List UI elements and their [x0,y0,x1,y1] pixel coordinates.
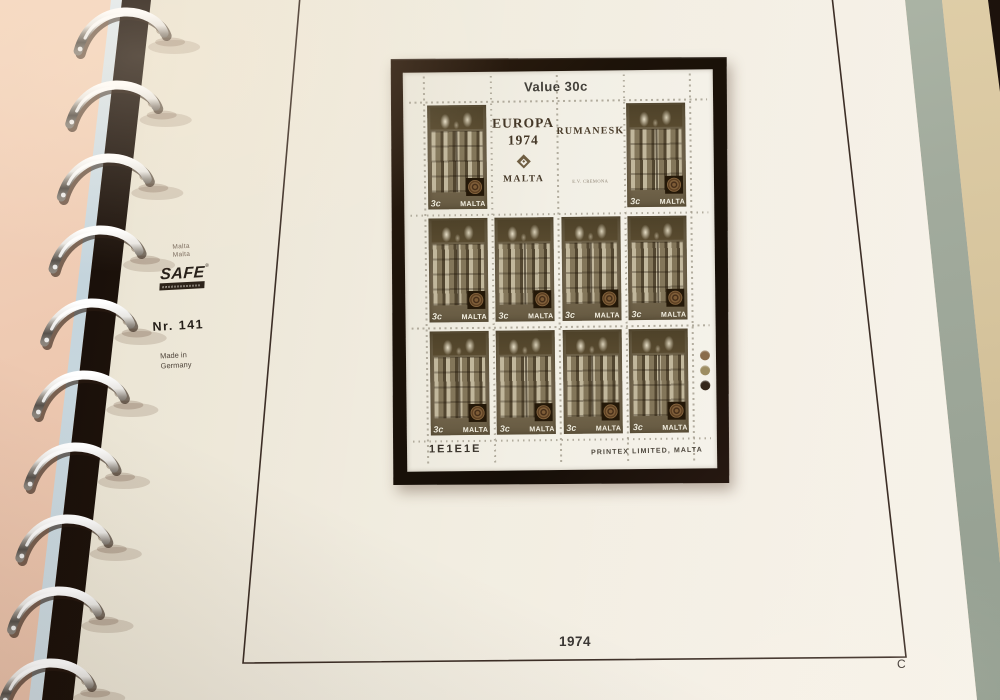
safe-logo-bar [159,281,204,290]
traffic-light-dot [700,350,710,360]
page-margin-printing: Malta Malta SAFE® Nr. 141 Made in German… [144,238,232,392]
stamp-rosette-icon [468,404,486,422]
stamp-sculpture-figures [431,220,484,243]
stamp-sculpture-figures [564,218,617,241]
stamp-country: MALTA [463,427,489,434]
page-number: Nr. 141 [152,317,204,334]
stamp-sculpture-figures [630,218,683,241]
stamp-sculpture-figures [432,333,485,356]
stamp-country: MALTA [595,312,621,319]
sheet-cell: 3cMALTA [426,327,494,441]
stamp-rosette-icon [666,289,684,307]
stamp-country: MALTA [596,425,622,432]
stamp-value: 3c [633,422,643,432]
stamp-value: 3c [432,311,442,321]
stamp-rosette-icon [667,402,685,420]
sheet-cell: 3cMALTA [492,326,560,440]
stamp-value: 3c [498,311,508,321]
stamp-country: MALTA [661,312,687,319]
stamp: 3cMALTA [561,216,621,321]
stamp: 3cMALTA [429,331,489,436]
stamp-value: 3c [630,196,640,206]
stamp-rosette-icon [467,291,485,309]
stamp-country: MALTA [529,426,555,433]
year-label: 1974 [540,634,610,649]
europa-text: EUROPA [490,115,557,132]
stamp-rosette-icon [465,178,483,196]
sheet-cell: 3cMALTA [491,213,559,327]
sheet-cell: 3cMALTA [623,99,691,213]
stamp-value: 3c [565,310,575,320]
sheet-cell: RUMANESKE.V. CREMONA [556,99,624,213]
stamp-rosette-icon [665,176,683,194]
miniature-sheet: Value 30c 3cMALTAEUROPA1974MALTARUMANESK… [403,69,718,471]
stamp-rosette-icon [535,403,553,421]
sheet-cell: 3cMALTA [424,214,492,328]
sheet-cell: 3cMALTA [423,101,491,215]
stamp-country: MALTA [462,314,488,321]
stamp: 3cMALTA [562,329,622,434]
sheet-cell: 3cMALTA [624,212,692,326]
stamp-country: MALTA [660,199,686,206]
stamp: 3cMALTA [494,217,554,322]
stamp-value: 3c [566,423,576,433]
stamp: 3cMALTA [496,330,556,435]
stamp-country: MALTA [528,313,554,320]
traffic-light-dots [700,350,711,395]
sheet-cell: 3cMALTA [625,325,693,439]
stamp-value: 3c [500,424,510,434]
country-label: Malta Malta [172,243,190,260]
sheet-cell: 3cMALTA [557,212,625,326]
printer-emblem-icon [516,154,530,168]
stamp: 3cMALTA [428,218,488,323]
sheet-cell: 3cMALTA [559,325,627,439]
stamp: 3cMALTA [427,105,487,210]
europa-country: MALTA [490,174,557,185]
romanesk-label: RUMANESKE.V. CREMONA [556,99,624,213]
photo-of-stamp-album: Malta Malta SAFE® Nr. 141 Made in German… [0,0,1000,700]
corner-letter: C [897,657,906,671]
perforation-lines [403,69,713,73]
stamp-rosette-icon [601,402,619,420]
made-in-label: Made in Germany [160,350,192,371]
stamp: 3cMALTA [626,103,686,208]
traffic-light-dot [700,380,710,390]
sheet-cell: EUROPA1974MALTA [490,100,558,214]
stamp-mount: Value 30c 3cMALTAEUROPA1974MALTARUMANESK… [391,57,730,485]
stamp-sculpture-figures [632,331,685,354]
plate-number: 1E1E1E [429,443,482,456]
stamp-sculpture-figures [499,332,552,355]
stamp-rosette-icon [533,290,551,308]
stamp-sculpture-figures [565,331,618,354]
stamp-rosette-icon [600,289,618,307]
designer-credit: E.V. CREMONA [557,178,624,184]
registered-mark-icon: ® [205,263,209,269]
romanesk-text: RUMANESK [556,125,623,137]
stamp-value: 3c [631,309,641,319]
stamp: 3cMALTA [627,216,687,321]
safe-logo: SAFE® [159,263,209,291]
traffic-light-dot [700,365,710,375]
stamp-value: 3c [431,198,441,208]
stamp-value: 3c [433,424,443,434]
europa-year: 1974 [490,132,557,149]
stamp-sculpture-figures [497,219,550,242]
stamp-grid: 3cMALTAEUROPA1974MALTARUMANESKE.V. CREMO… [403,69,713,73]
stamp: 3cMALTA [629,329,689,434]
stamp-country: MALTA [662,425,688,432]
stamp-sculpture-figures [430,107,483,130]
printer-imprint: PRINTEX LIMITED, MALTA [591,447,703,457]
stamp-sculpture-figures [629,105,682,128]
stamp-country: MALTA [460,201,486,208]
europa-label: EUROPA1974MALTA [490,100,558,214]
